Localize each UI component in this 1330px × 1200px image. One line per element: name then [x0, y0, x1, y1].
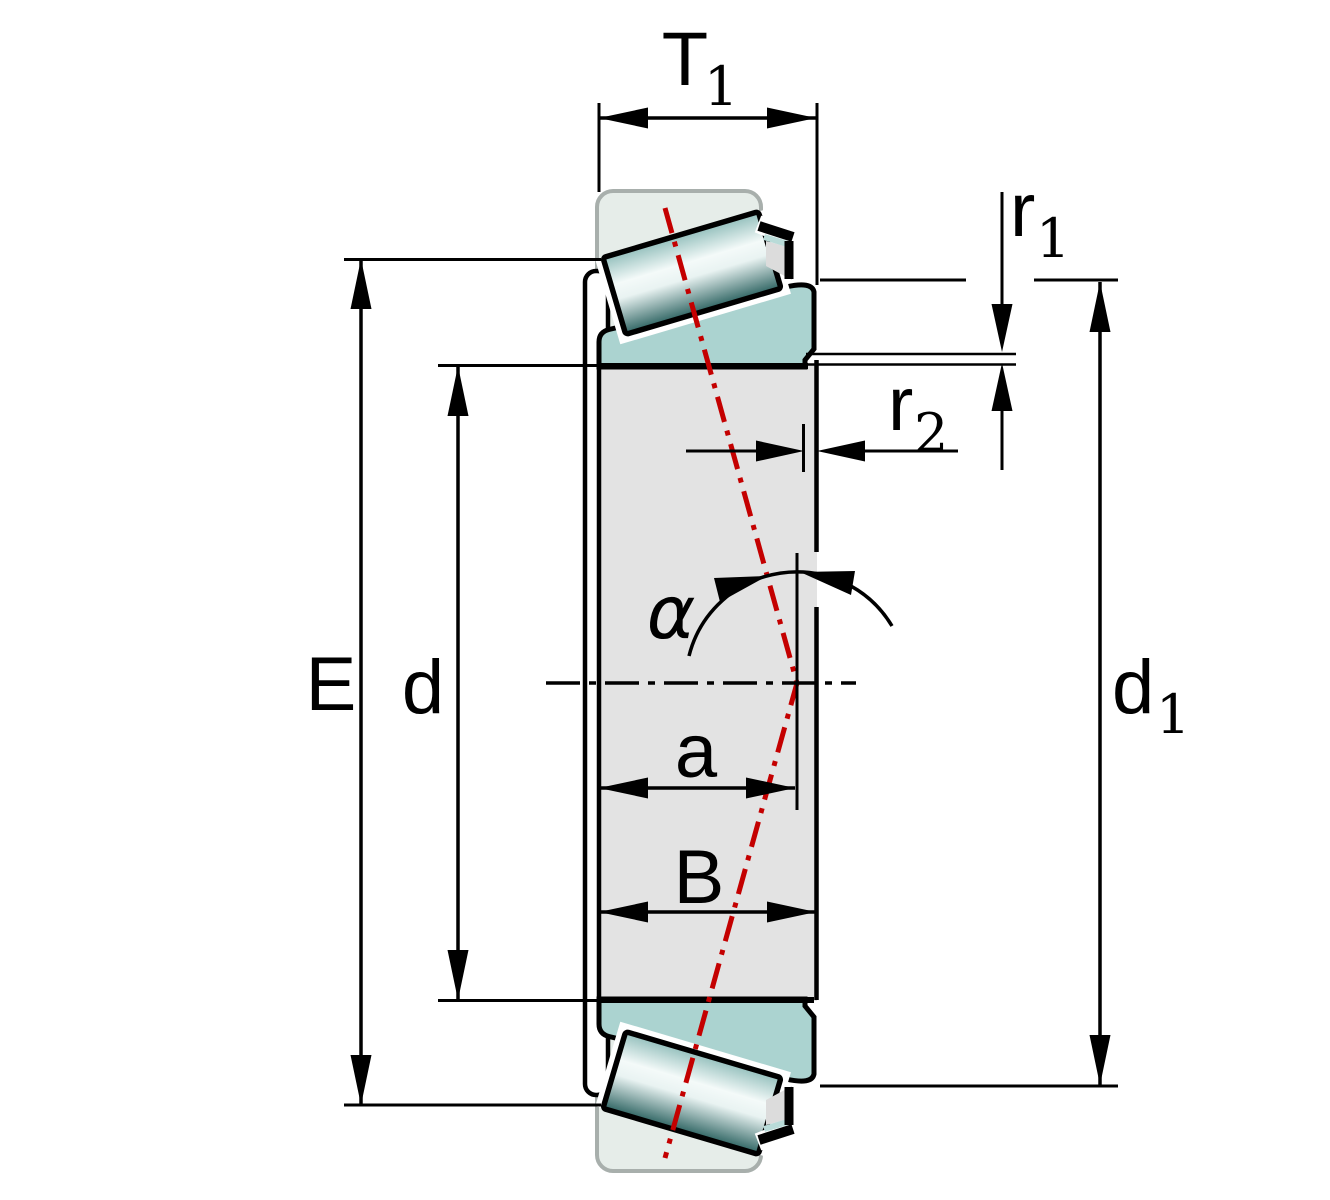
t1-arrow-left: [599, 108, 648, 129]
label-r1-subscript: 1: [1036, 207, 1070, 270]
diagram-canvas: T 1 E d d 1 r 1 r 2 a B α: [0, 0, 1330, 1200]
r1-arrow-up: [992, 363, 1013, 411]
d1-arrow-top: [1090, 282, 1111, 332]
label-r2: r: [888, 362, 913, 447]
label-d: d: [402, 645, 444, 730]
r2-arrow-left: [817, 441, 865, 462]
label-d1-subscript: 1: [1156, 683, 1190, 746]
label-d1: d: [1112, 645, 1154, 730]
d-arrow-top: [448, 366, 469, 416]
label-e: E: [306, 642, 357, 727]
e-arrow-top: [351, 259, 372, 309]
r1-arrow-down: [992, 304, 1013, 352]
label-t1: T: [662, 17, 708, 102]
d1-arrow-bottom: [1090, 1035, 1111, 1085]
e-arrow-bottom: [351, 1055, 372, 1105]
label-b: B: [674, 835, 725, 920]
label-r1: r: [1010, 168, 1035, 253]
t1-arrow-right: [767, 108, 816, 129]
label-a: a: [675, 709, 718, 794]
label-r2-subscript: 2: [914, 402, 948, 465]
label-t1-subscript: 1: [704, 55, 738, 118]
bearing-dimension-diagram: T 1 E d d 1 r 1 r 2 a B α: [0, 0, 1330, 1200]
d-arrow-bottom: [448, 950, 469, 1000]
label-alpha: α: [647, 570, 696, 656]
